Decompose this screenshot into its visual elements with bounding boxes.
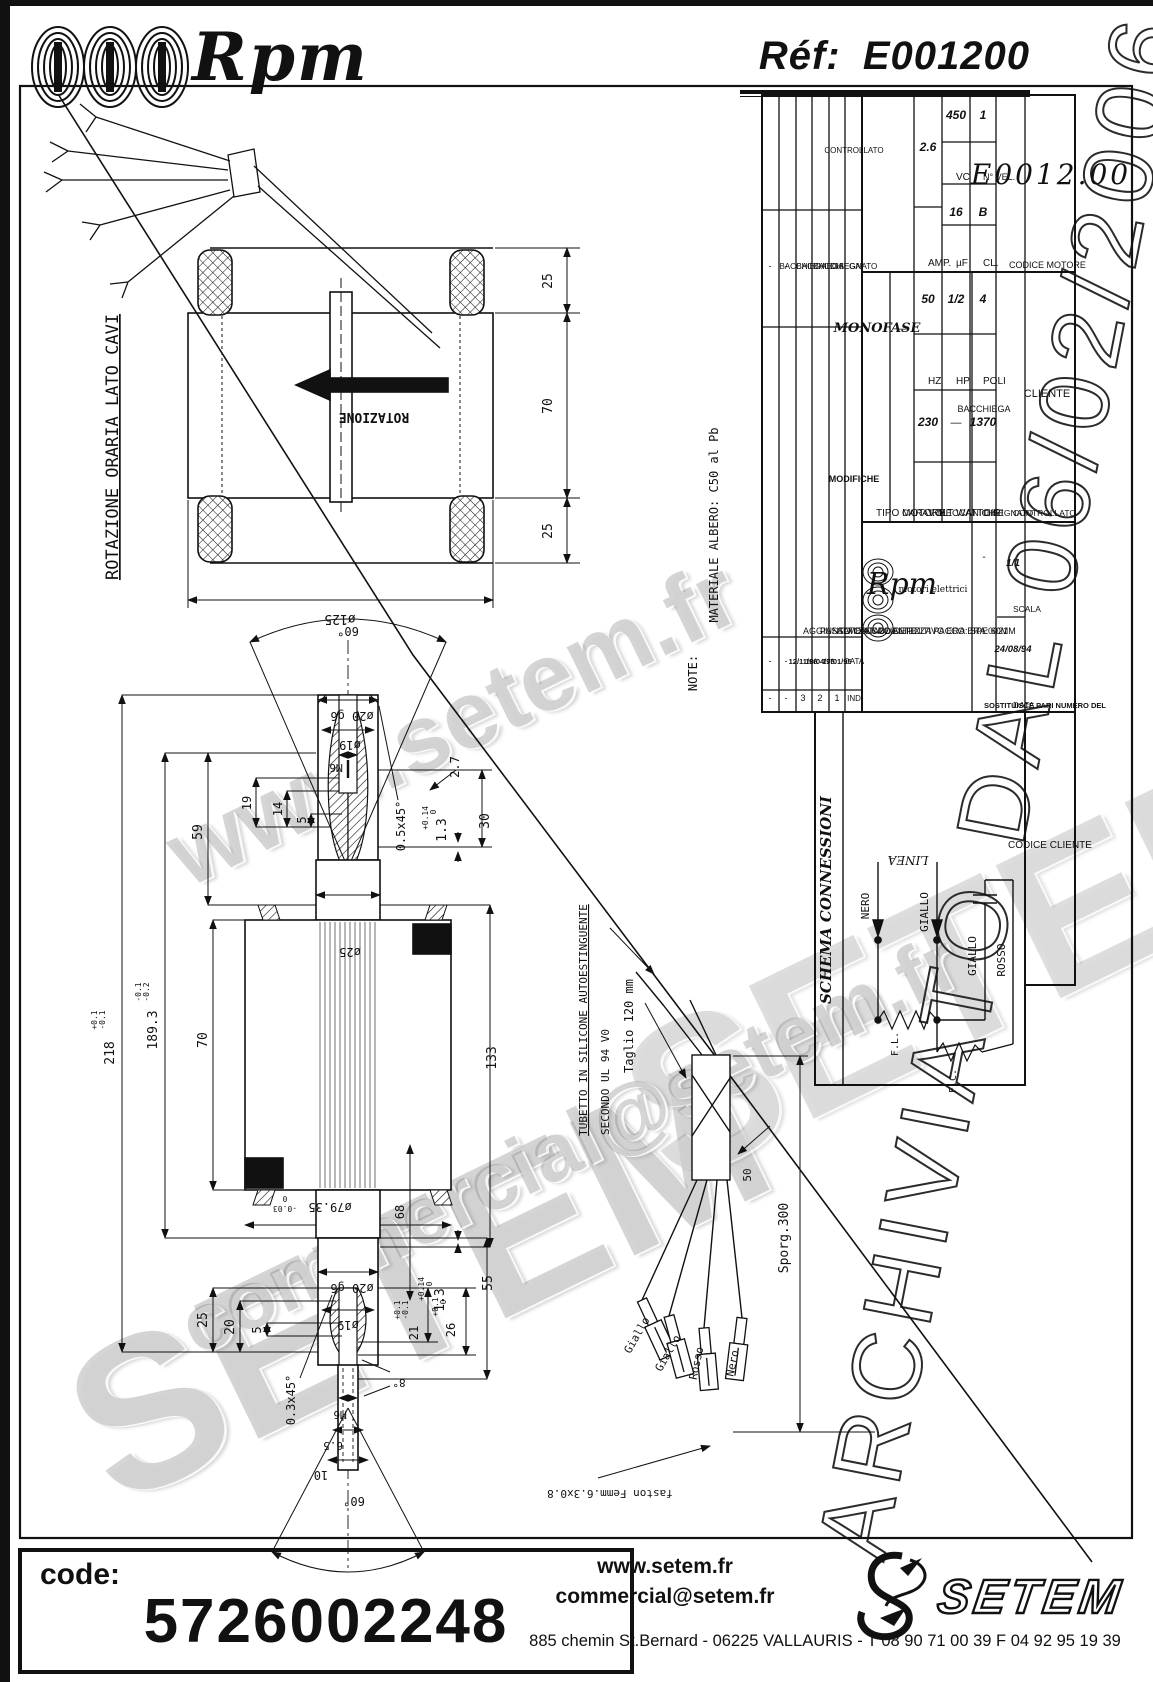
svg-text:GIALLO: GIALLO [918, 892, 931, 932]
svg-text:25: 25 [196, 1312, 211, 1328]
svg-text:WATT: WATT [956, 508, 983, 519]
svg-text:59: 59 [191, 824, 206, 840]
sheet-frame [20, 86, 1132, 1538]
drawing-page: www.setem.fr SETEM SETEM commercial@sete… [0, 0, 1153, 1682]
svg-text:CLIENTE: CLIENTE [1024, 388, 1070, 400]
svg-text:26: 26 [444, 1323, 458, 1337]
svg-text:1.3: 1.3 [435, 818, 450, 841]
svg-text:HP: HP [956, 376, 970, 387]
svg-text:MATERIALE ALBERO: C50 al Pb: MATERIALE ALBERO: C50 al Pb [707, 427, 721, 622]
svg-text:motori elettrici: motori elettrici [899, 585, 968, 595]
svg-text:-: - [785, 693, 788, 703]
svg-text:0: 0 [425, 1281, 434, 1286]
svg-text:NOTE:: NOTE: [686, 655, 700, 691]
svg-text:1: 1 [834, 693, 839, 703]
svg-text:1: 1 [980, 108, 987, 122]
svg-text:+0.14: +0.14 [421, 806, 430, 830]
svg-text:19: 19 [240, 796, 254, 810]
svg-text:faston Femm.6.3x0.8: faston Femm.6.3x0.8 [547, 1487, 673, 1500]
svg-text:B: B [979, 205, 988, 219]
svg-text:ROTAZIONE ORARIA LATO CAVI: ROTAZIONE ORARIA LATO CAVI [103, 314, 123, 580]
svg-text:DATA: DATA [1013, 700, 1035, 710]
cable-labels: TUBETTO IN SILICONE AUTOESTINGUENTESECON… [547, 904, 792, 1500]
svg-text:68: 68 [393, 1205, 407, 1219]
svg-text:30: 30 [478, 813, 493, 829]
svg-text:50: 50 [741, 1168, 754, 1181]
footer-site: www.setem.fr [505, 1552, 825, 1582]
svg-text:0.3x45°: 0.3x45° [284, 1375, 298, 1426]
svg-text:10: 10 [314, 1468, 328, 1482]
svg-text:0: 0 [439, 1299, 448, 1304]
svg-text:GIALLO: GIALLO [966, 936, 979, 976]
svg-text:IND: IND [847, 694, 861, 703]
svg-text:14: 14 [271, 802, 285, 816]
setem-swan-icon [850, 1548, 940, 1648]
rotation-arrow [296, 370, 448, 400]
svg-text:SECONDO UL 94 V0: SECONDO UL 94 V0 [599, 1029, 612, 1135]
svg-text:60°: 60° [337, 624, 359, 638]
svg-text:-: - [769, 656, 772, 666]
svg-text:SCHEMA CONNESSIONI: SCHEMA CONNESSIONI [817, 795, 835, 1004]
svg-text:-: - [982, 552, 985, 563]
svg-text:SCALA: SCALA [1013, 604, 1041, 614]
svg-text:60°: 60° [343, 1494, 365, 1508]
svg-text:70: 70 [196, 1032, 211, 1048]
svg-text:1370: 1370 [970, 415, 997, 429]
svg-text:25: 25 [541, 273, 556, 289]
setem-logo-text: SETEM [934, 1570, 1127, 1625]
svg-text:230: 230 [917, 415, 938, 429]
svg-text:-: - [769, 261, 772, 271]
svg-text:AGGIUNTO COD. CLIENTE: AGGIUNTO COD. CLIENTE [803, 626, 916, 636]
svg-text:2: 2 [817, 693, 822, 703]
svg-text:-0.03: -0.03 [273, 1204, 297, 1213]
svg-text:VOLT: VOLT [928, 508, 953, 519]
svg-text:BACCHIEGA: BACCHIEGA [957, 404, 1010, 414]
svg-text:ø19: ø19 [337, 1318, 359, 1332]
svg-text:5: 5 [295, 816, 309, 823]
svg-text:M6: M6 [329, 761, 342, 774]
svg-text:-0.1: -0.1 [401, 1300, 410, 1319]
stator-cable-bundle [44, 104, 440, 348]
svg-text:ø125: ø125 [324, 611, 355, 626]
footer-email: commercial@setem.fr [505, 1582, 825, 1612]
svg-text:-: - [769, 693, 772, 703]
svg-text:Taglio 120 mm: Taglio 120 mm [622, 979, 636, 1073]
svg-text:—: — [897, 323, 908, 335]
stator-view [44, 104, 580, 608]
svg-text:-0.1: -0.1 [98, 1010, 107, 1029]
svg-text:-: - [785, 261, 788, 271]
svg-text:4: 4 [979, 292, 987, 306]
svg-text:CL.: CL. [983, 258, 999, 269]
svg-text:1/2: 1/2 [948, 292, 965, 306]
svg-text:CODICE MOTORE: CODICE MOTORE [1009, 260, 1086, 270]
svg-text:MONOFASE: MONOFASE [833, 321, 922, 336]
svg-text:CONTROLLATO: CONTROLLATO [824, 146, 883, 155]
technical-drawing: ROTAZIONE ORARIA LATO CAVIROTAZIONE25702… [0, 0, 1153, 1682]
svg-text:0: 0 [282, 1194, 287, 1203]
svg-text:0.5x45°: 0.5x45° [394, 801, 408, 852]
svg-text:2.7: 2.7 [448, 756, 462, 778]
svg-text:NERO: NERO [859, 893, 872, 920]
svg-text:F.C.: F.C. [948, 1069, 959, 1093]
svg-text:LINEA: LINEA [887, 853, 929, 867]
svg-text:-: - [785, 656, 788, 666]
svg-text:70: 70 [541, 398, 556, 414]
svg-text:3: 3 [800, 693, 805, 703]
svg-text:ø20 g6: ø20 g6 [330, 1281, 373, 1295]
svg-text:POLI: POLI [983, 376, 1006, 387]
svg-text:ø79.35: ø79.35 [308, 1200, 351, 1214]
svg-text:1/1: 1/1 [1006, 558, 1020, 569]
svg-text:12/11/96: 12/11/96 [789, 657, 818, 666]
svg-text:ø20 g6: ø20 g6 [330, 709, 373, 723]
svg-text:AMP.: AMP. [928, 258, 951, 269]
svg-text:8°: 8° [392, 1376, 405, 1389]
schema-labels: SCHEMA CONNESSIONILINEANEROGIALLOGIALLOR… [817, 795, 1008, 1093]
svg-text:M6: M6 [333, 1408, 346, 1421]
svg-text:+0.14: +0.14 [417, 1277, 426, 1301]
svg-text:ROTAZIONE: ROTAZIONE [339, 409, 409, 424]
svg-text:21: 21 [407, 1326, 421, 1340]
svg-text:TUBETTO IN SILICONE AUTOESTING: TUBETTO IN SILICONE AUTOESTINGUENTE [577, 904, 590, 1136]
svg-text:218: 218 [103, 1041, 118, 1064]
svg-text:189.3: 189.3 [146, 1010, 161, 1049]
svg-text:5: 5 [250, 1326, 264, 1333]
svg-text:20: 20 [223, 1319, 238, 1335]
svg-text:55: 55 [481, 1275, 496, 1291]
setem-logo: SETEM [850, 1548, 1150, 1648]
svg-text:133: 133 [485, 1046, 500, 1069]
svg-text:E0012.00: E0012.00 [970, 158, 1131, 191]
svg-text:µF: µF [956, 258, 968, 269]
titleblock-labels: INDDATAMODIFICHEDISEGNATOCONTROLLATO117/… [769, 108, 1132, 851]
svg-text:SOSTITUISCE PARI NUMERO DEL: SOSTITUISCE PARI NUMERO DEL [984, 701, 1106, 710]
rotor-shaft-view [122, 619, 492, 1572]
svg-text:—: — [951, 417, 962, 429]
svg-text:ø25: ø25 [339, 945, 361, 959]
svg-text:2.6: 2.6 [919, 140, 937, 154]
svg-text:16: 16 [949, 205, 963, 219]
schema-connessioni [815, 712, 1075, 1085]
note-labels: NOTE:MATERIALE ALBERO: C50 al Pb [686, 427, 721, 691]
svg-text:0: 0 [429, 809, 438, 814]
svg-text:HZ: HZ [928, 376, 941, 387]
svg-text:CODICE CLIENTE: CODICE CLIENTE [1008, 840, 1092, 851]
svg-text:CONTROLLATO: CONTROLLATO [1013, 508, 1076, 518]
svg-text:MODIFICHE: MODIFICHE [829, 474, 880, 484]
svg-text:50: 50 [921, 292, 935, 306]
svg-text:25: 25 [541, 523, 556, 539]
svg-text:ø19: ø19 [339, 738, 361, 752]
svg-text:ROSSO: ROSSO [995, 943, 1008, 976]
svg-text:Sporg.300: Sporg.300 [777, 1203, 792, 1273]
cable-tube-view [598, 928, 875, 1478]
svg-text:24/08/94: 24/08/94 [994, 644, 1033, 655]
svg-text:-0.2: -0.2 [142, 982, 151, 1001]
footer-contacts: www.setem.fr commercial@setem.fr [505, 1552, 825, 1612]
svg-text:F.L.: F.L. [890, 1032, 901, 1056]
svg-text:VC: VC [956, 172, 970, 183]
svg-text:6.5: 6.5 [323, 1439, 343, 1452]
svg-text:450: 450 [945, 108, 966, 122]
